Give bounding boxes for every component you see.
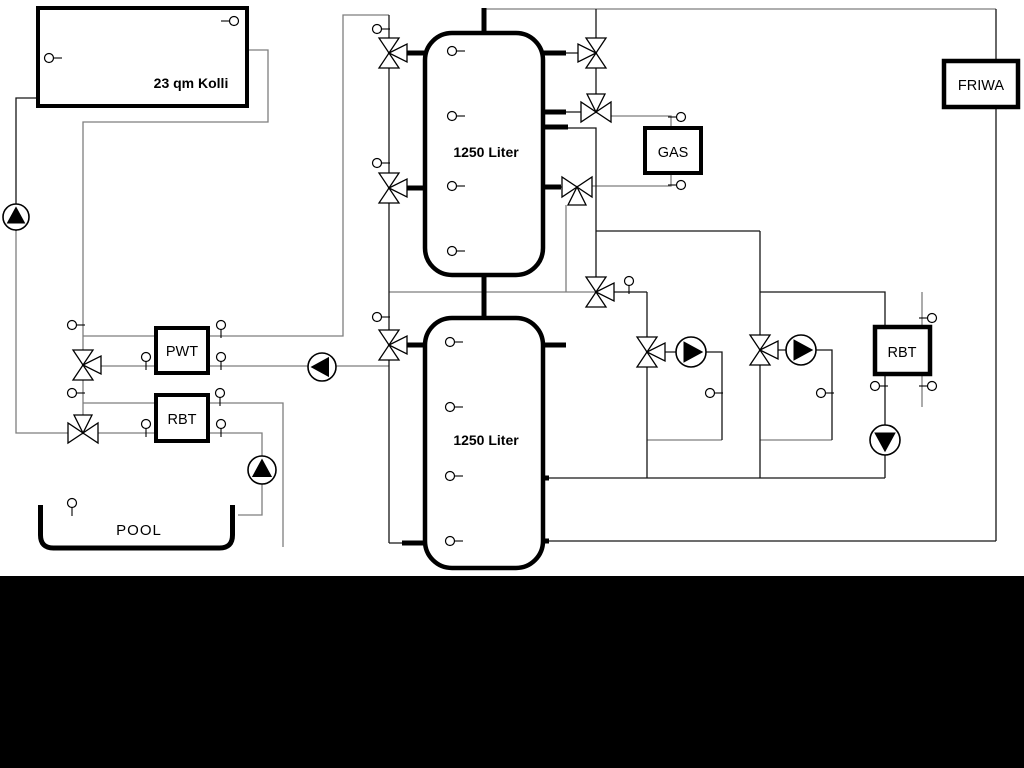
temperature-sensor-icon [446,403,455,412]
temperature-sensor-icon [446,472,455,481]
gas-boiler-label: GAS [658,145,689,161]
temperature-sensor-icon [448,247,457,256]
schematic-page: 23 qm Kolli1250 Liter1250 LiterPWTRBTGAS… [0,0,1024,768]
temperature-sensor-icon [216,389,225,398]
temperature-sensor-icon [928,314,937,323]
temperature-sensor-icon [230,17,239,26]
footer-black-bar [0,576,1024,768]
temperature-sensor-icon [142,353,151,362]
temperature-sensor-icon [373,313,382,322]
temperature-sensor-icon [142,420,151,429]
temperature-sensor-icon [68,499,77,508]
rbt-right-heat-exchanger-label: RBT [888,345,917,361]
temperature-sensor-icon [446,338,455,347]
temperature-sensor-icon [446,537,455,546]
temperature-sensor-icon [68,389,77,398]
hydraulic-schematic: 23 qm Kolli1250 Liter1250 LiterPWTRBTGAS… [0,0,1024,768]
temperature-sensor-icon [706,389,715,398]
temperature-sensor-icon [625,277,634,286]
temperature-sensor-icon [217,353,226,362]
temperature-sensor-icon [217,321,226,330]
temperature-sensor-icon [373,159,382,168]
temperature-sensor-icon [45,54,54,63]
temperature-sensor-icon [68,321,77,330]
temperature-sensor-icon [817,389,826,398]
pwt-heat-exchanger-label: PWT [166,344,198,360]
rbt-pool-heat-exchanger-label: RBT [168,412,197,428]
solar-collector-label: 23 qm Kolli [154,75,229,91]
temperature-sensor-icon [677,113,686,122]
temperature-sensor-icon [871,382,880,391]
solar-collector-box [38,8,247,106]
temperature-sensor-icon [448,47,457,56]
temperature-sensor-icon [928,382,937,391]
buffer-tank-upper-label: 1250 Liter [453,144,519,160]
pool-label: POOL [116,522,162,539]
temperature-sensor-icon [373,25,382,34]
temperature-sensor-icon [217,420,226,429]
temperature-sensor-icon [677,181,686,190]
temperature-sensor-icon [448,112,457,121]
friwa-station-label: FRIWA [958,78,1005,94]
temperature-sensor-icon [448,182,457,191]
buffer-tank-lower-label: 1250 Liter [453,432,519,448]
